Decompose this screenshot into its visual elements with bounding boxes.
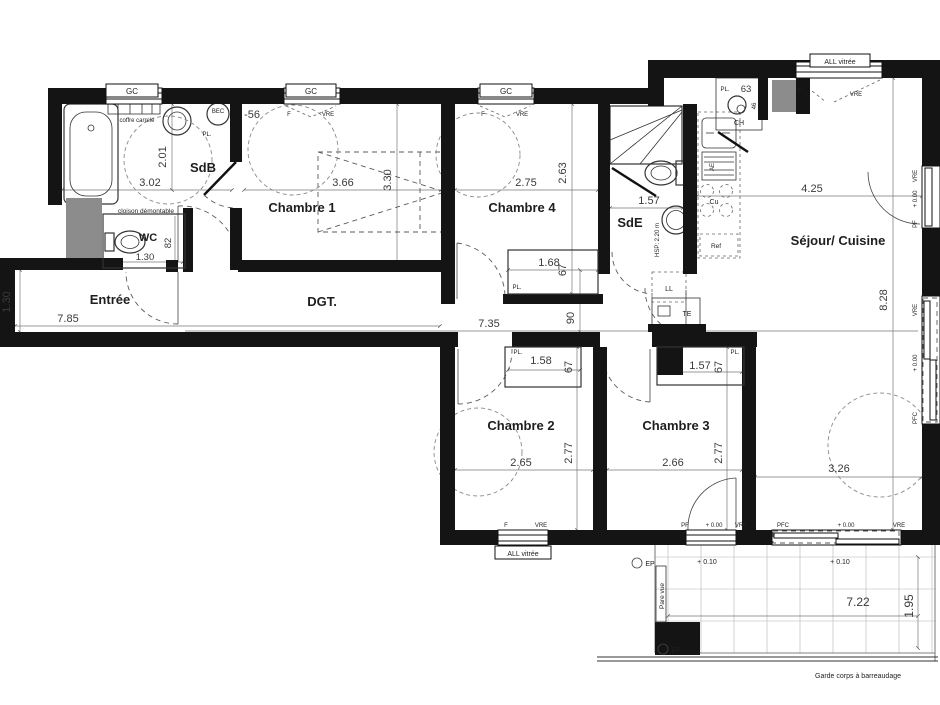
label-f-chambre4: F (481, 112, 485, 118)
label-pl-chambre2: PL. (513, 350, 522, 356)
wall-segment (598, 104, 610, 274)
dim-chambre4-width: 2.75 (515, 177, 536, 189)
dim-sdb-door: -56 (244, 109, 260, 121)
dim-chambre2-closet-width: 1.58 (530, 355, 551, 367)
room-label-chambre4: Chambre 4 (488, 200, 556, 215)
dim-entree-height: 1.30 (1, 291, 13, 312)
room-label-chambre1: Chambre 1 (268, 200, 335, 215)
label-hsp: HSP: 2.20 m (655, 223, 661, 257)
wall-segment (512, 332, 600, 347)
label-gc-sdb: GC (126, 87, 138, 96)
dim-chambre3-height: 2.77 (713, 442, 725, 463)
wall-segment (922, 74, 940, 168)
wall-segment (652, 332, 757, 347)
label-te: TE (683, 311, 692, 318)
label-f-chambre1: F (287, 112, 291, 118)
label-f-chambre2: F (504, 523, 508, 529)
label-cu: Cu (710, 199, 719, 206)
dim-chambre3-width: 2.66 (662, 457, 683, 469)
label-bec: BEC (212, 109, 225, 115)
dim-chambre4-height: 2.63 (557, 162, 569, 183)
room-label-dgt: DGT. (307, 294, 337, 309)
wall-segment (48, 88, 62, 205)
wall-segment (922, 226, 940, 298)
label-pl-chambre3: PL. (730, 350, 739, 356)
window-pfc-sejour-bottom (772, 530, 901, 545)
label-vre-pf-right: VRE (913, 170, 919, 182)
wall-segment (441, 104, 455, 304)
room-label-chambre2: Chambre 2 (487, 418, 554, 433)
dim-chambre2-width: 2.65 (510, 457, 531, 469)
label-vre-chambre3: VRE (735, 523, 747, 529)
room-label-entree: Entrée (90, 292, 130, 307)
dim-chambre4-closet-depth: 67 (557, 264, 569, 276)
room-label-chambre3: Chambre 3 (642, 418, 709, 433)
dim-boiler-depth: 46 (752, 102, 758, 109)
room-label-sdb: SdB (190, 160, 216, 175)
label-level-balcony-1: + 0.10 (697, 559, 717, 566)
wall-segment (440, 345, 455, 545)
label-ll: LL (665, 286, 673, 293)
dim-balcony-depth: 1.95 (902, 594, 916, 618)
dim-chambre1-height: 3.30 (382, 169, 394, 190)
wall-segment (648, 324, 706, 332)
dim-entree-width: 7.85 (57, 313, 78, 325)
wall-segment (0, 332, 458, 347)
floor-plan-drawing: SdB Chambre 1 Chambre 4 SdE Séjour/ Cuis… (0, 0, 940, 705)
label-gc-chambre4: GC (500, 87, 512, 96)
room-label-wc: WC (139, 232, 157, 244)
dim-sejour-width: 4.25 (801, 183, 822, 195)
dim-balcony-width: 7.22 (846, 595, 870, 609)
label-ep-1: EP (645, 561, 655, 568)
dim-sdb-height: 2.01 (157, 146, 169, 167)
label-garde-corps: Garde corps à barreaudage (815, 673, 901, 680)
dim-chambre2-closet-depth: 67 (563, 361, 575, 373)
wall-segment (648, 60, 664, 106)
label-ch: CH (734, 120, 744, 127)
window-pf-chambre3-bottom (686, 530, 736, 545)
window-pfc-right (922, 296, 940, 424)
label-cloison-demontable: cloison démontable (118, 208, 174, 215)
label-all-vitree-bottom: ALL vitrée (507, 551, 538, 558)
dim-sde-width: 1.57 (638, 195, 659, 207)
floor-plan-page: SdB Chambre 1 Chambre 4 SdE Séjour/ Cuis… (0, 0, 940, 705)
wall-segment (796, 78, 810, 114)
label-vre-chambre2: VRE (535, 523, 547, 529)
label-ae: AE (710, 163, 716, 171)
wall-segment (901, 530, 940, 545)
wall-segment (736, 530, 772, 545)
dim-dgt-width: 90 (565, 312, 577, 324)
label-level-chambre3: + 0.00 (706, 523, 724, 529)
label-pl-sdb: PL. (202, 132, 211, 138)
label-level-pf-right: + 0.00 (913, 190, 919, 208)
wall-segment (657, 347, 683, 375)
wall-segment (230, 208, 242, 270)
label-vre-chambre4: VRE (516, 112, 528, 118)
label-coffre-carrele: coffre carrelé (120, 118, 156, 124)
label-gc-chambre1: GC (305, 87, 317, 96)
label-level-sejour-bottom: + 0.00 (838, 523, 856, 529)
label-pfc-right: PFC (913, 411, 919, 424)
wall-segment (648, 60, 940, 78)
label-ep-2: EP (671, 647, 681, 654)
room-label-sejour: Séjour/ Cuisine (791, 233, 886, 248)
wall-segment (166, 260, 178, 272)
label-vre-sejour-top: VRE (850, 92, 862, 98)
label-pf-right: PF (913, 220, 919, 228)
label-pare-vue: Pare vue (659, 583, 666, 609)
dim-wc-width: 1.30 (136, 252, 155, 263)
dim-chambre3-closet-width: 1.57 (689, 360, 710, 372)
dim-wc-depth: 82 (163, 238, 174, 249)
wall-segment (503, 294, 603, 304)
dim-chambre3-closet-depth: 67 (713, 361, 725, 373)
wall-segment (238, 260, 443, 272)
label-vre-pfc-right: VRE (913, 304, 919, 316)
dim-kitchen-closet: 63 (741, 84, 752, 95)
label-all-vitree-top: ALL vitrée (824, 59, 855, 66)
label-pl-cuisine: PL. (720, 87, 729, 93)
dim-sejour-height: 8.28 (878, 289, 890, 310)
room-label-sde: SdE (617, 215, 643, 230)
dim-chambre1-width: 3.66 (332, 177, 353, 189)
label-f-sejour-top: F (798, 89, 802, 95)
wall-segment (683, 104, 697, 274)
label-pfc-sejour-bottom: PFC (777, 523, 790, 529)
label-pl-chambre4: PL. (512, 285, 521, 291)
label-vre-chambre1: VRE (322, 112, 334, 118)
label-vre-sejour-bottom: VRE (893, 523, 905, 529)
label-level-balcony-2: + 0.10 (830, 559, 850, 566)
label-pf-chambre3: PF (681, 523, 689, 529)
dim-sdb-width: 3.02 (139, 177, 160, 189)
wall-segment (230, 104, 242, 162)
label-level-pfc-right: + 0.00 (913, 354, 919, 372)
dim-dgt-length: 7.35 (478, 318, 499, 330)
label-ref: Ref (711, 243, 721, 250)
wall-segment (593, 347, 607, 545)
window-pf-right (922, 166, 940, 228)
dim-sejour-lower-width: 3.26 (828, 463, 849, 475)
wall-segment (758, 78, 768, 120)
wall-segment (922, 424, 940, 545)
dim-chambre2-height: 2.77 (563, 442, 575, 463)
